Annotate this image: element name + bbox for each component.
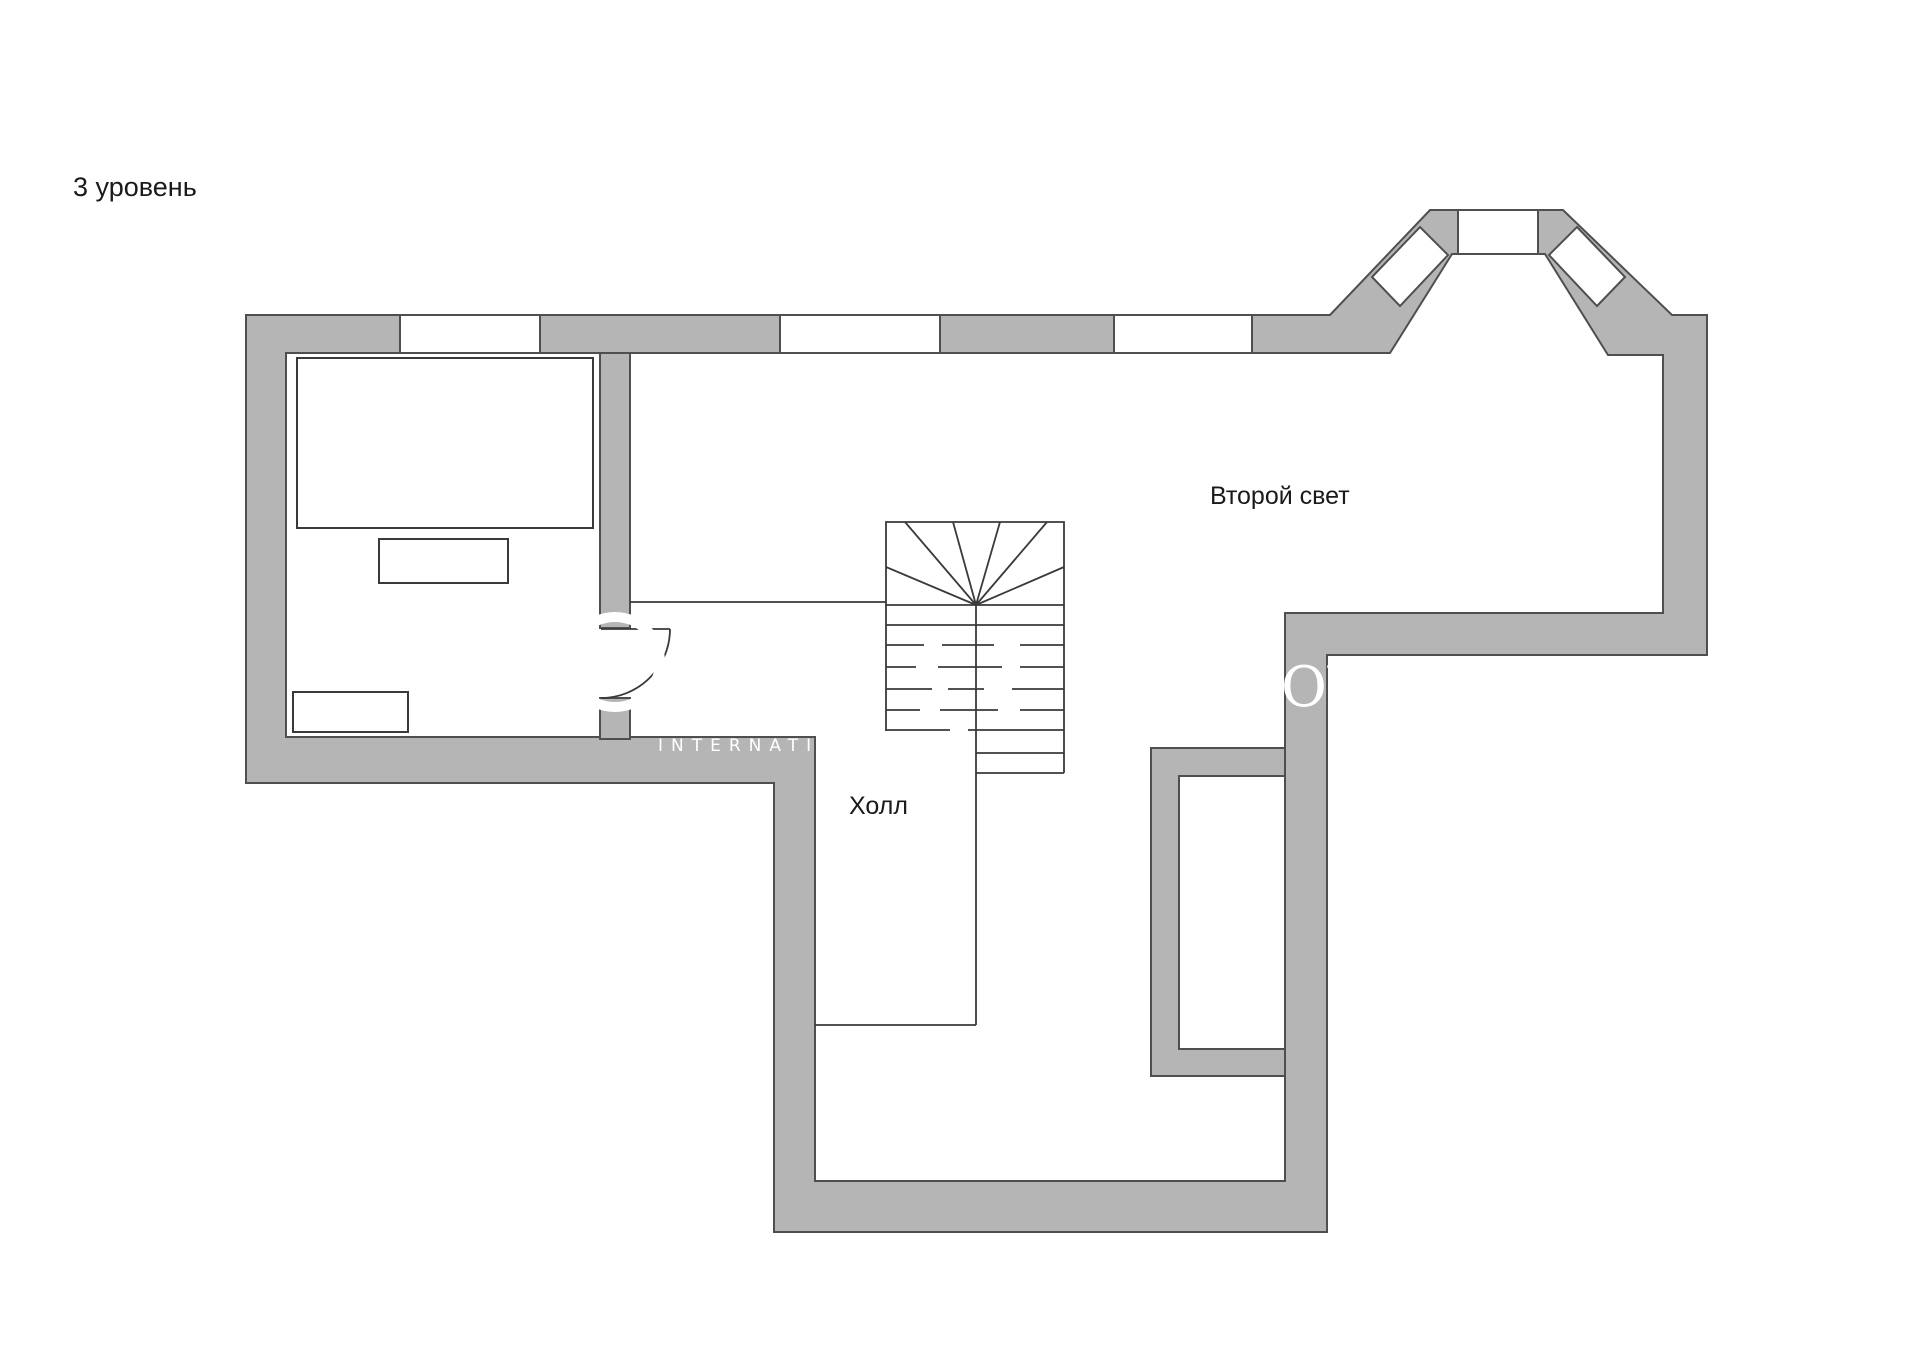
window-bay-center (1458, 210, 1538, 254)
room-label-hall: Холл (849, 792, 908, 820)
floor-plan-svg: OV INTERNATIONAL 3 уровень Второй свет Х… (0, 0, 1920, 1358)
stair-outline (886, 522, 1064, 773)
stair-fan (886, 522, 1064, 605)
window-top-2 (780, 315, 940, 353)
floor-plan-page: OV INTERNATIONAL 3 уровень Второй свет Х… (0, 0, 1920, 1358)
partition-wall-upper (600, 353, 630, 628)
watermark-letter-arc (570, 617, 660, 707)
shaft-walls (1151, 748, 1285, 1076)
page-title: 3 уровень (73, 172, 197, 202)
room-label-second-light: Второй свет (1210, 482, 1350, 510)
watermark-caps-text: INTERNATIONAL (658, 736, 898, 756)
window-top-3 (1114, 315, 1252, 353)
bed (297, 358, 593, 528)
staircase (886, 522, 1064, 1025)
cabinet (293, 692, 408, 732)
window-top-1 (400, 315, 540, 353)
watermark-serif-text: OV (1281, 655, 1370, 720)
watermark: OV INTERNATIONAL (570, 617, 1370, 756)
desk (379, 539, 508, 583)
